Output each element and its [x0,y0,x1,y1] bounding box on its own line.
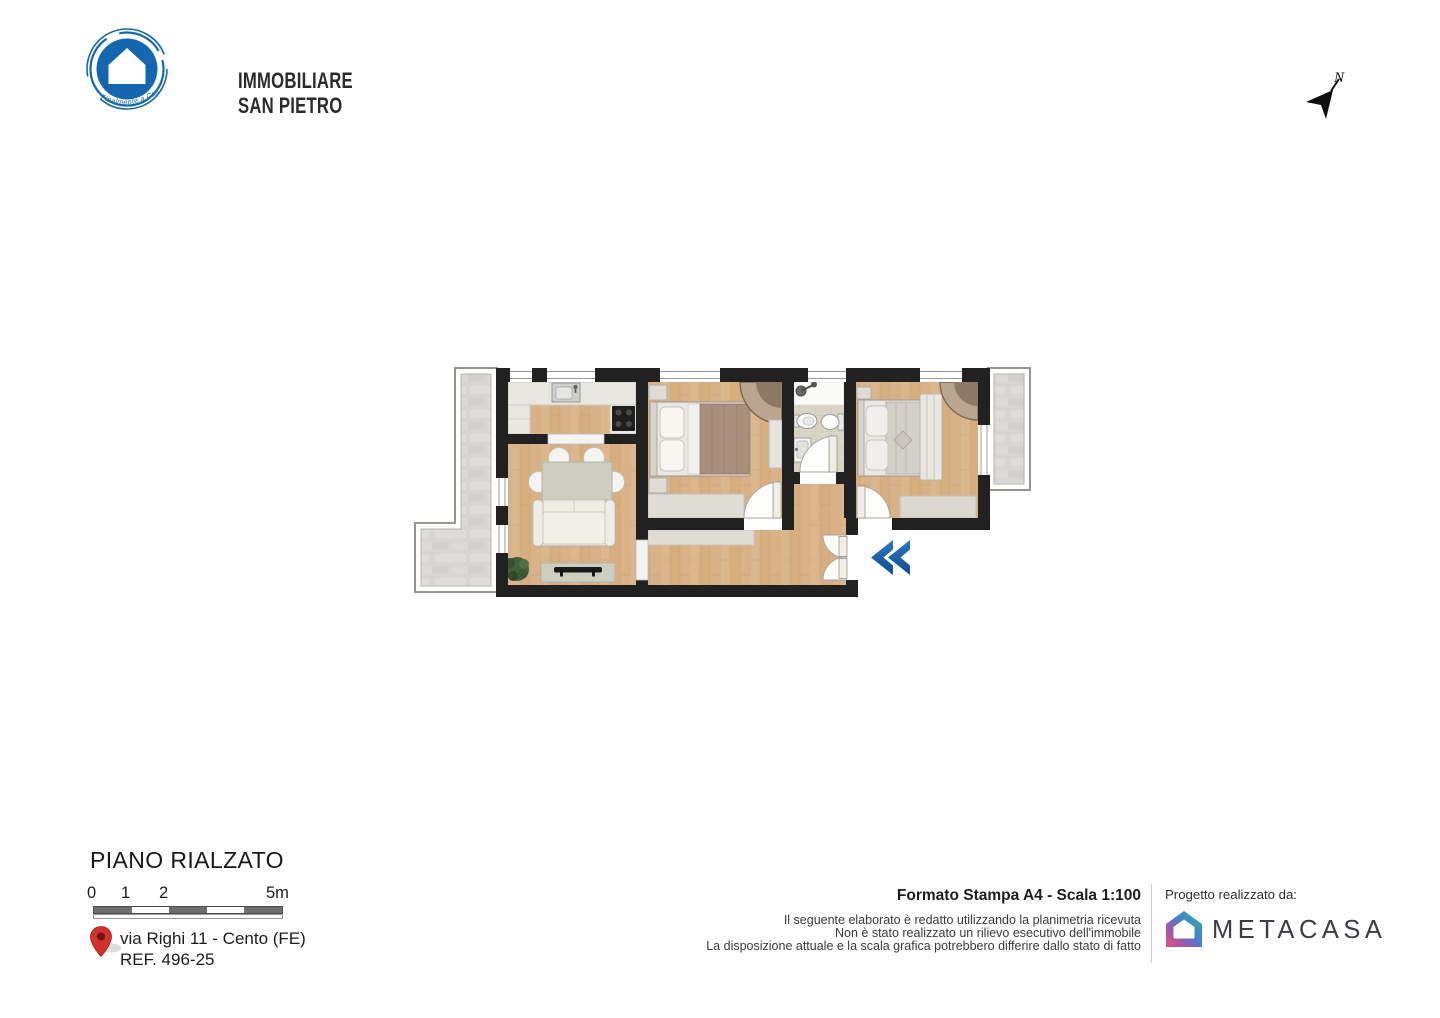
window [510,368,532,382]
double-bed [858,394,942,480]
dining-table [542,462,612,502]
floor-plan [405,355,1040,605]
tv-cabinet [541,563,615,582]
wardrobe [648,494,744,518]
window [547,368,595,382]
credits-label: Progetto realizzato da: [1165,887,1297,902]
window [978,425,990,475]
scale-bar-segments [93,906,283,914]
north-label: N [1333,70,1345,86]
disclaimer-line: La disposizione attuale e la scala grafi… [681,940,1141,953]
metacasa-logo-icon [1164,909,1204,949]
brand-logo: Finalmente a Casa IMMOBILIARE SAN PIETRO [82,24,402,116]
nightstand [649,385,667,400]
brand-name-line2: SAN PIETRO [238,93,353,118]
brand-name-line1: IMMOBILIARE [238,68,353,93]
terrace [415,368,497,592]
blanket-drape [920,394,942,480]
nightstand [649,478,667,493]
rug [900,496,976,518]
window [920,368,962,382]
location-pin-icon [88,925,124,959]
entrance-arrow-icon [871,540,910,575]
sofa [533,500,615,546]
brand-logo-icon: Finalmente a Casa [82,24,172,116]
kitchen-sink-icon [552,383,580,402]
hallway-cabinet [648,530,754,545]
print-info: Formato Stampa A4 - Scala 1:100 Il segue… [681,887,1141,954]
cooktop-icon [612,406,635,431]
reference-number: REF. 496-25 [120,949,306,970]
plant-icon [505,557,529,581]
window [808,368,846,382]
bidet-icon [794,414,817,429]
north-arrow-dart [1306,90,1333,119]
scale-label-1: 1 [121,884,130,903]
pillow [866,440,888,470]
shelf [769,420,782,468]
window [660,368,720,382]
brand-wordmark: IMMOBILIARE SAN PIETRO [238,68,353,118]
scale-label-0: 0 [87,884,96,903]
balcony [988,368,1030,490]
window [496,525,508,553]
north-arrow-icon: N [1300,64,1352,122]
double-bed [650,402,750,476]
scale-label-5m: 5m [266,884,289,903]
pillow [660,440,684,471]
scale-label-2: 2 [159,884,168,903]
address-line: via Righi 11 - Cento (FE) [120,928,306,949]
pillow [866,406,888,436]
divider [1151,884,1152,963]
window [496,478,508,506]
property-address: via Righi 11 - Cento (FE) REF. 496-25 [120,928,306,970]
toilet-icon [821,414,844,430]
metacasa-wordmark: METACASA [1212,916,1386,945]
nightstand [857,387,871,399]
pillow [660,407,684,438]
kitchen-cabinet [508,405,530,434]
scale-bar-baseline [93,914,283,919]
floor-title: PIANO RIALZATO [90,847,284,874]
print-format-title: Formato Stampa A4 - Scala 1:100 [681,887,1141,905]
